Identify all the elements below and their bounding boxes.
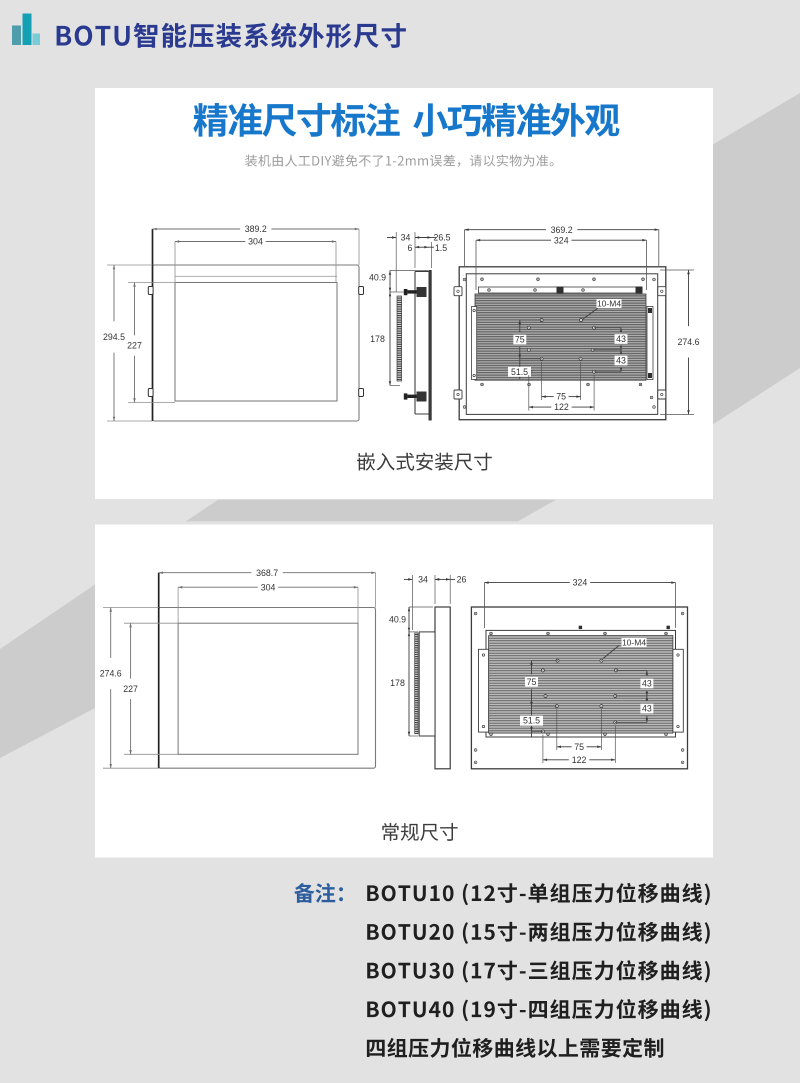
svg-text:40.9: 40.9 (369, 273, 386, 283)
svg-text:75: 75 (515, 335, 525, 345)
svg-text:122: 122 (554, 402, 569, 412)
svg-text:6: 6 (408, 243, 413, 253)
svg-text:51.5: 51.5 (523, 716, 540, 726)
svg-text:178: 178 (390, 678, 405, 688)
svg-text:122: 122 (572, 755, 587, 765)
svg-text:274.6: 274.6 (677, 337, 699, 347)
svg-text:43: 43 (642, 678, 652, 688)
svg-text:10-M4: 10-M4 (622, 638, 646, 648)
svg-text:26: 26 (457, 574, 467, 584)
svg-text:324: 324 (573, 578, 588, 588)
svg-text:75: 75 (574, 742, 584, 752)
svg-text:34: 34 (418, 574, 428, 584)
svg-text:294.5: 294.5 (103, 332, 125, 342)
svg-text:227: 227 (123, 684, 138, 694)
svg-text:26.5: 26.5 (433, 233, 450, 243)
svg-text:304: 304 (248, 237, 263, 247)
svg-text:10-M4: 10-M4 (597, 299, 621, 309)
svg-text:227: 227 (127, 341, 142, 351)
svg-text:75: 75 (556, 392, 566, 402)
svg-text:34: 34 (401, 233, 411, 243)
svg-text:324: 324 (554, 235, 569, 245)
svg-text:40.9: 40.9 (389, 615, 406, 625)
svg-text:1.5: 1.5 (435, 243, 447, 253)
svg-text:274.6: 274.6 (100, 669, 122, 679)
svg-text:369.2: 369.2 (551, 225, 573, 235)
svg-text:368.7: 368.7 (256, 568, 278, 578)
svg-text:51.5: 51.5 (511, 367, 528, 377)
svg-text:43: 43 (616, 334, 626, 344)
svg-text:75: 75 (527, 677, 537, 687)
svg-text:389.2: 389.2 (245, 224, 267, 234)
svg-text:304: 304 (261, 582, 276, 592)
svg-text:43: 43 (642, 704, 652, 714)
svg-text:178: 178 (370, 334, 385, 344)
svg-text:43: 43 (616, 356, 626, 366)
